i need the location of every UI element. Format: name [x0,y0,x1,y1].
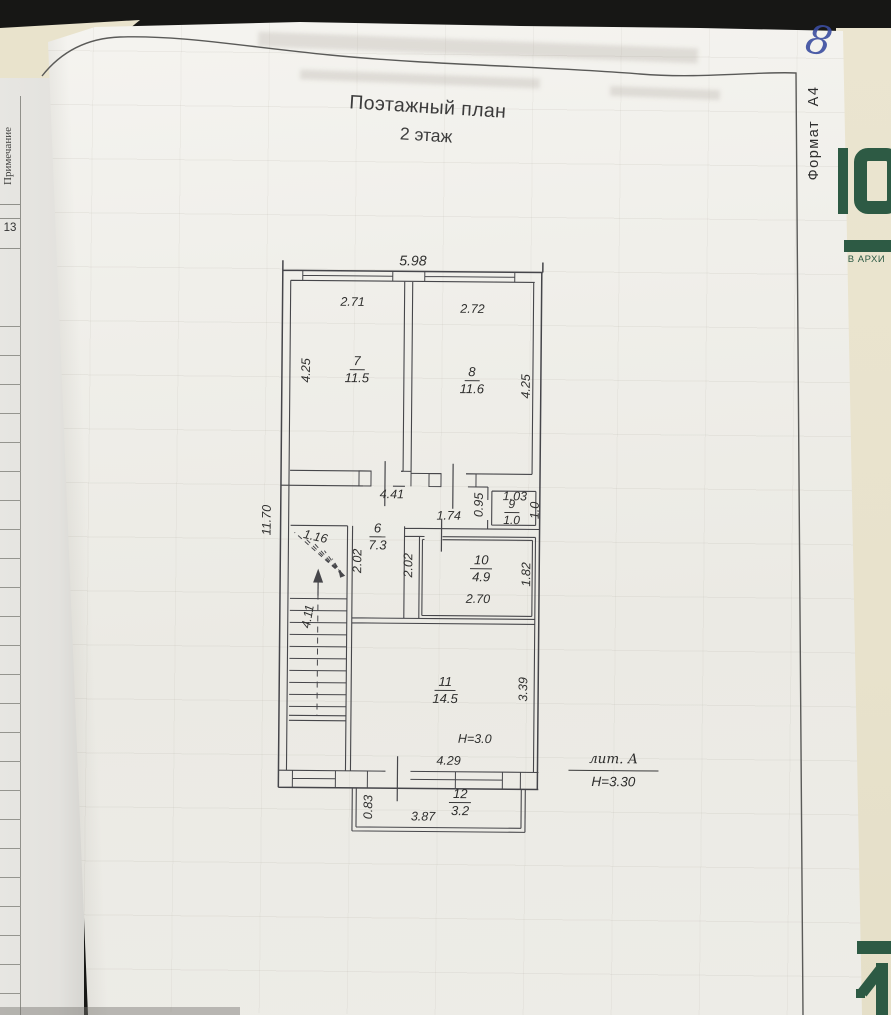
room10-area: 4.9 [470,569,493,584]
room8-area: 11.6 [460,381,484,396]
room12-number: 12 [449,787,472,803]
dim-stairs-side: 2.02 [350,549,364,573]
dim-balcony-left: 0.83 [361,795,375,819]
room7-area: 11.5 [345,370,369,385]
room9-number: 9 [504,498,519,513]
stair-up-arrow [313,569,323,583]
floor-plan: 5.98 2.71 2.72 4.25 4.25 7 11.5 8 11.6 4… [250,250,675,854]
dim-room9-left: 0.95 [472,493,486,517]
dim-room8-height: 4.25 [519,374,533,398]
staircase [289,532,348,715]
balcony-outline [352,788,525,833]
room12-area: 3.2 [449,803,472,818]
room6-label: 6 7.3 [368,520,386,552]
dim-room10-door: 1.74 [436,509,460,523]
room11-area: 14.5 [432,691,457,706]
dim-corridor: 2.02 [401,553,415,577]
room7-label: 7 11.5 [345,353,370,385]
winder-arrowhead [338,569,345,578]
dim-room7-height: 4.25 [299,358,313,382]
liter-height: Н=3.30 [568,771,658,790]
windows [292,270,525,789]
room12-label: 12 3.2 [449,786,472,818]
dim-hall-top: 4.41 [380,487,404,501]
cover-green-bar [857,941,891,954]
dim-total-width: 5.98 [399,252,426,268]
room10-label: 10 4.9 [470,552,493,584]
dim-room9-right: 1.0 [528,502,542,520]
room11-ceiling-height: Н=3.0 [458,732,492,746]
dim-room8-width: 2.72 [460,302,484,316]
dim-balcony-bottom: 3.87 [411,809,435,823]
logo-letter-fragment [838,148,848,214]
dim-room10-right: 1.82 [519,562,533,586]
room6-number: 6 [370,521,385,537]
room6-area: 7.3 [368,537,386,552]
dim-total-height: 11.70 [260,505,274,535]
dim-room11-bottom: 4.29 [436,754,460,768]
liter-label: лит. А [568,751,658,772]
room11-number: 11 [434,675,456,691]
stair-walk-line [317,583,318,716]
dim-room11-right: 3.39 [516,677,530,701]
room9-area: 1.0 [503,513,520,527]
format-a4-label: Формат А4 [806,61,826,205]
scanned-floor-plan-photo: Примечание 13 Поэтажный план 2 этаж Форм… [0,0,891,1015]
room10-number: 10 [470,553,493,569]
room11-label: 11 14.5 [432,674,458,706]
cover-green-bar [844,240,891,252]
dim-room10-bottom: 2.70 [466,592,490,606]
cover-logo-fragment-bottom [854,933,891,1015]
room8-label: 8 11.6 [460,364,485,396]
room8-number: 8 [464,365,479,381]
room7-number: 7 [349,354,364,370]
logo-letter-ring [854,148,891,214]
cover-archive-text: В АРХИ [842,254,891,265]
room9-label: 9 1.0 [503,496,520,527]
dim-room7-width: 2.71 [340,295,364,309]
liter-annotation: лит. А Н=3.30 [568,751,658,790]
